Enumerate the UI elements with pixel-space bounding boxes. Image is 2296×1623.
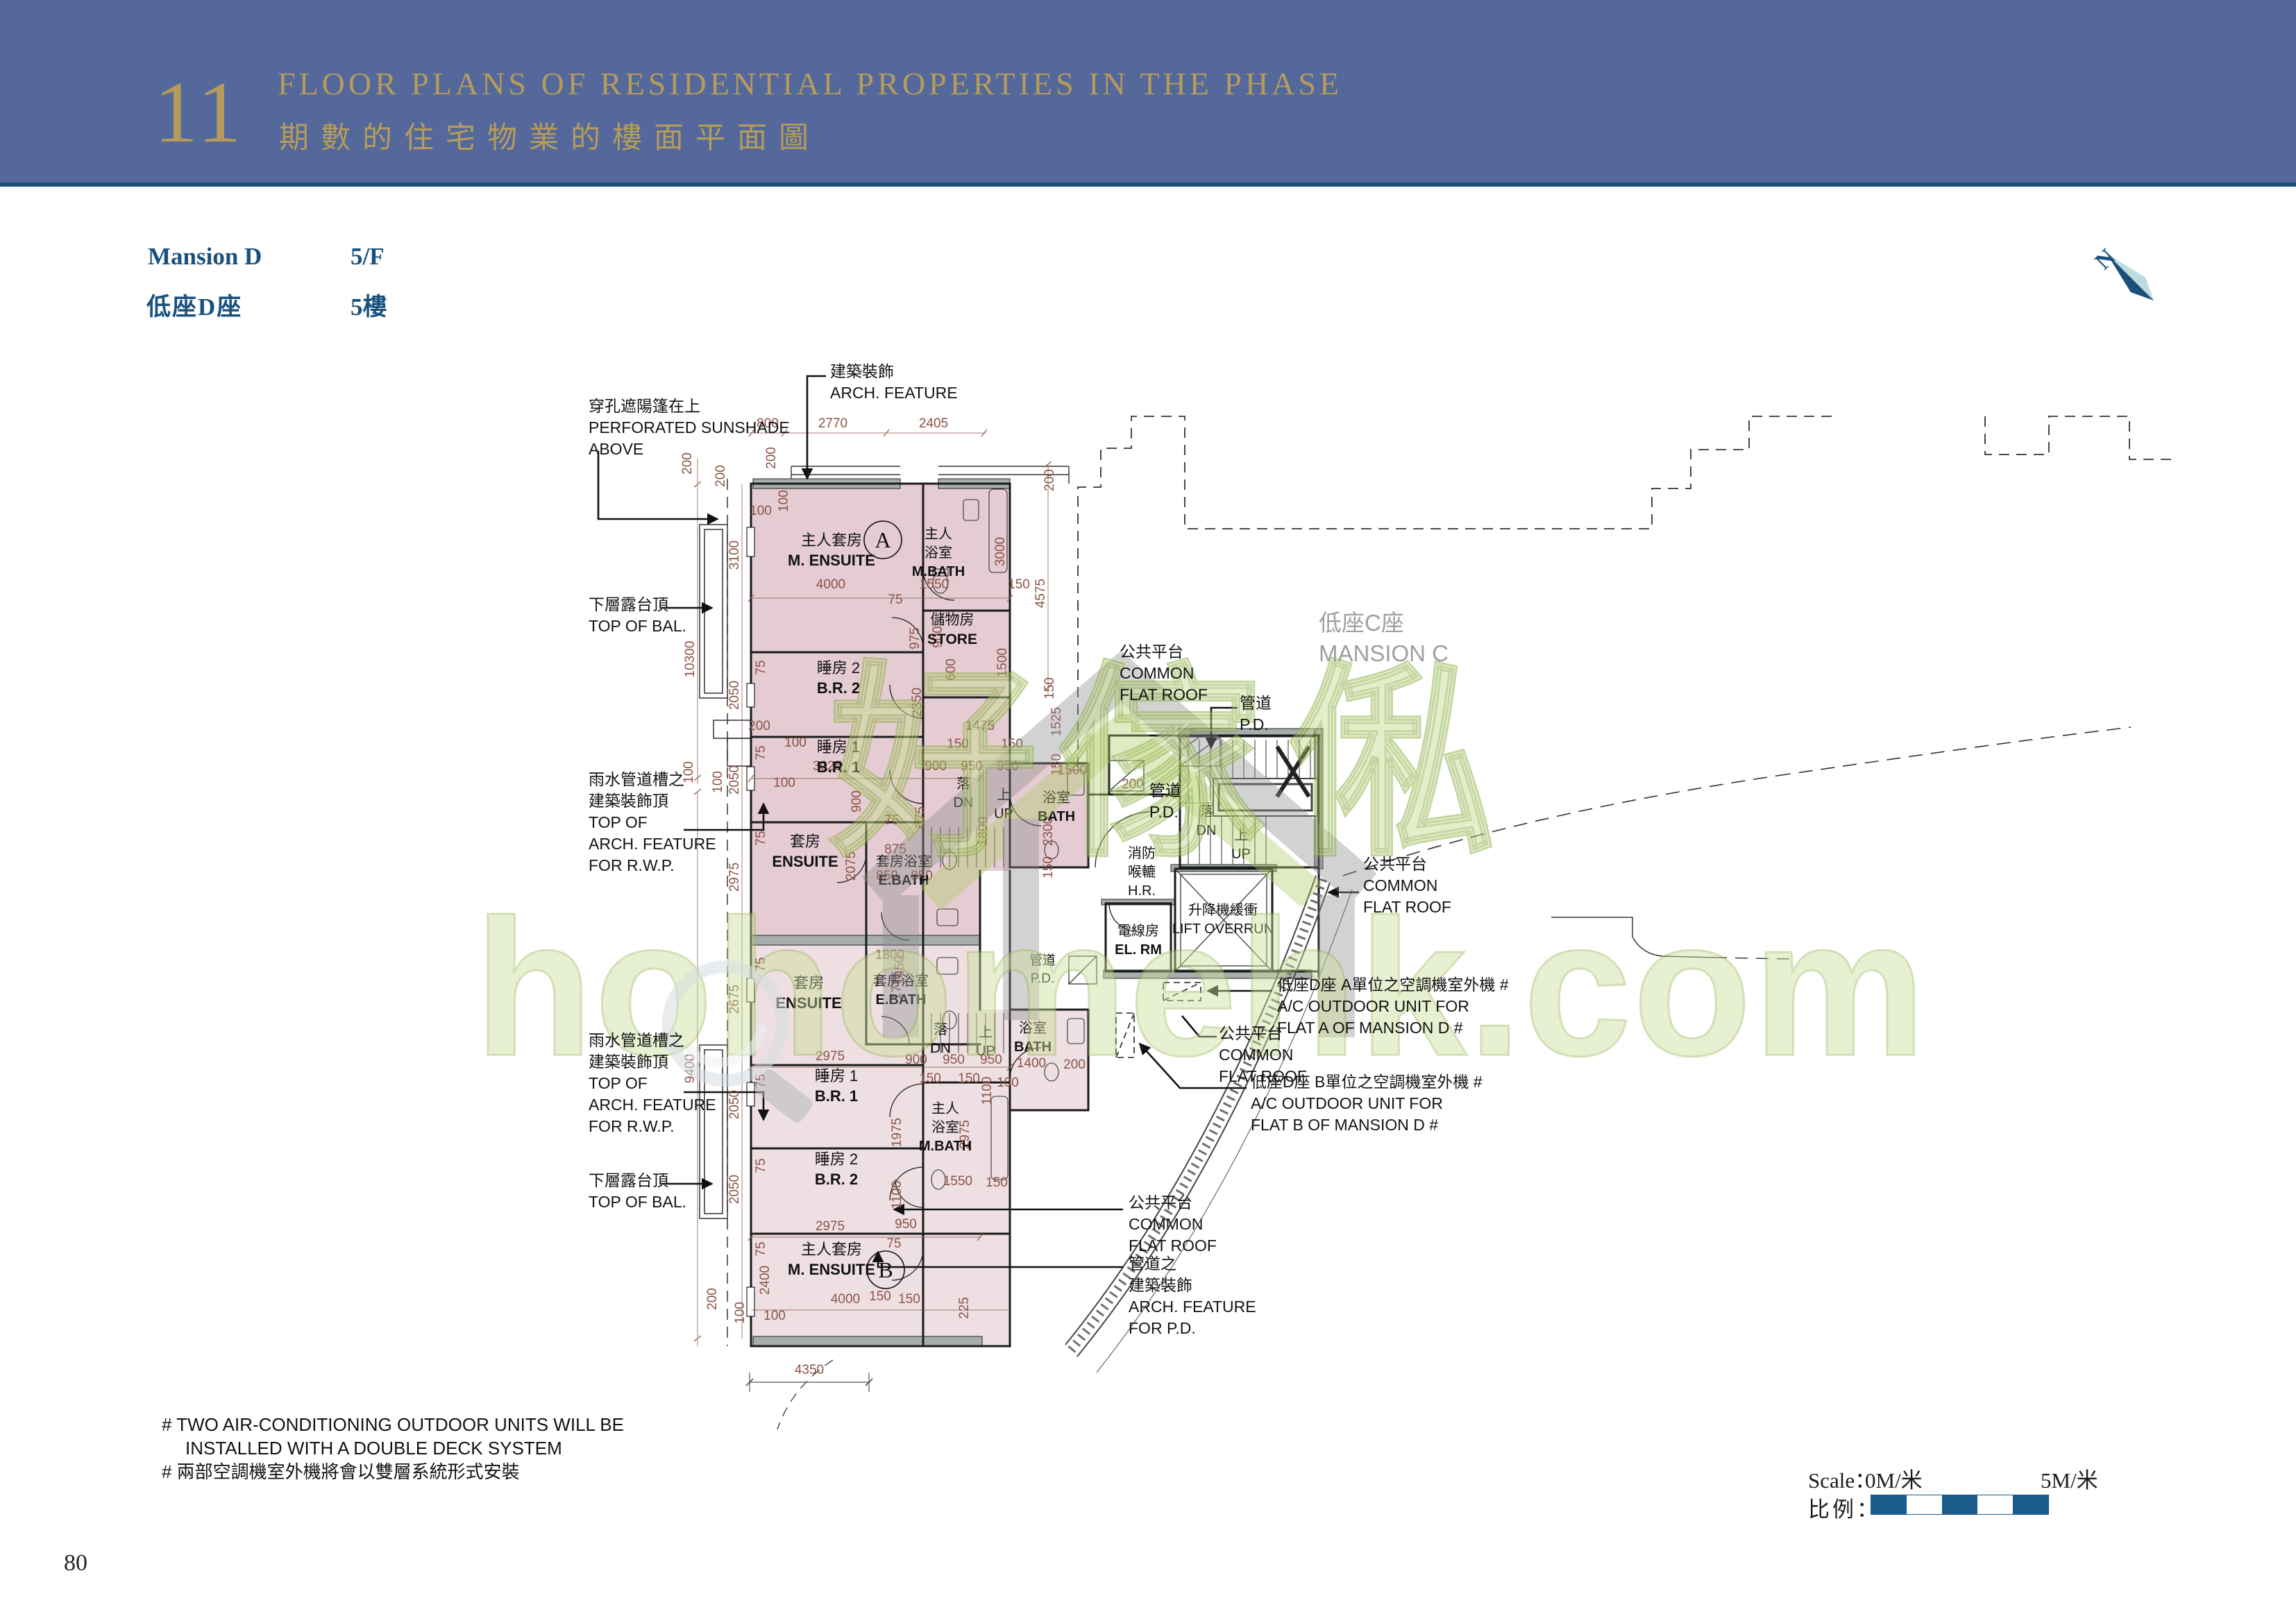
room-label: M. ENSUITE — [788, 552, 875, 569]
dim-label: 200 — [714, 465, 728, 487]
scale-bar-segments — [1871, 1495, 2049, 1515]
annotation-common-flat-roof-1: 公共平台COMMONFLAT ROOF — [1120, 641, 1208, 706]
dim-label: 2975 — [816, 1219, 845, 1234]
annotation-top-of-bal-1: 下層露台頂TOP OF BAL. — [589, 594, 686, 637]
dim-label: 3000 — [993, 537, 1008, 566]
dim-label: 2050 — [727, 765, 742, 794]
dim-label: 2050 — [727, 681, 742, 710]
dim-label: 10300 — [683, 641, 698, 678]
dim-label: 2050 — [727, 1175, 742, 1204]
dim-label: 75 — [888, 593, 902, 607]
dim-label: 150 — [986, 1175, 1008, 1190]
scale-segment — [1907, 1495, 1942, 1514]
room-label: ENSUITE — [772, 853, 838, 870]
dim-label: 150 — [1008, 577, 1030, 592]
dim-label: 2770 — [818, 416, 847, 431]
room-label: B.R. 2 — [815, 1171, 858, 1188]
dim-label: 1550 — [943, 1174, 972, 1189]
north-arrow-icon: N — [2090, 244, 2161, 308]
dim-label: 975 — [908, 627, 922, 649]
floor-plan-drawing: 8002770240520020020010010031002050205029… — [0, 0, 2296, 1623]
dim-label: 4000 — [816, 577, 845, 592]
dim-label: 200 — [1043, 469, 1057, 491]
dim-label: 75 — [754, 745, 768, 760]
dim-label: 3100 — [727, 541, 742, 570]
annotation-rwp-1: 雨水管道槽之建築裝飾頂TOP OFARCH. FEATUREFOR R.W.P. — [589, 769, 716, 876]
dim-label: 75 — [754, 831, 768, 845]
dim-label: 100 — [777, 490, 791, 512]
dim-label: 100 — [733, 1302, 748, 1324]
dim-label: 75 — [886, 1237, 901, 1251]
dim-label: 1975 — [890, 1118, 904, 1147]
dim-label: 200 — [705, 1288, 720, 1310]
room-label: M. ENSUITE — [788, 1261, 875, 1278]
footnotes: # TWO AIR-CONDITIONING OUTDOOR UNITS WIL… — [162, 1413, 624, 1484]
dim-label: 75 — [754, 660, 768, 674]
dim-label: 100 — [763, 1309, 786, 1323]
room-label: 主人套房 — [801, 1241, 862, 1258]
room-label: STORE — [927, 631, 977, 647]
scale-bar: Scale： 0M/米 5M/米 比例： — [1808, 1463, 2197, 1518]
north-label: N — [2090, 244, 2120, 275]
flat-mark-letter: B — [878, 1257, 893, 1282]
dim-label: 200 — [748, 719, 770, 733]
annotation-common-flat-roof-4: 公共平台COMMONFLAT ROOF — [1129, 1192, 1217, 1257]
room-label: 浴室 — [925, 545, 952, 561]
scale-five: 5M/米 — [2041, 1463, 2098, 1494]
room-label: 套房 — [790, 833, 820, 850]
page-number: 80 — [64, 1550, 87, 1577]
annotation-arch-feature: 建築裝飾ARCH. FEATURE — [830, 361, 958, 404]
annotation-ac-flat-a: 低座D座 A單位之空調機室外機 #A/C OUTDOOR UNIT FORFLA… — [1277, 974, 1509, 1039]
annotation-arch-feature-pd: 管道之建築裝飾ARCH. FEATUREFOR P.D. — [1129, 1253, 1256, 1339]
annotation-ac-flat-b: 低座D座 B單位之空調機室外機 #A/C OUTDOOR UNIT FORFLA… — [1251, 1071, 1483, 1136]
annotation-top-of-bal-2: 下層露台頂TOP OF BAL. — [589, 1170, 686, 1213]
dim-label: 225 — [957, 1297, 972, 1319]
footnote-line2: INSTALLED WITH A DOUBLE DECK SYSTEM — [162, 1436, 624, 1460]
dim-label: 1550 — [920, 577, 949, 592]
dim-label: 150 — [869, 1289, 891, 1304]
flat-mark-letter: A — [875, 527, 890, 552]
dim-label: 75 — [754, 1241, 768, 1256]
dim-label: 950 — [895, 1217, 917, 1232]
scale-zero: 0M/米 — [1865, 1463, 1923, 1494]
footnote-line1: # TWO AIR-CONDITIONING OUTDOOR UNITS WIL… — [162, 1413, 624, 1436]
dim-label: 100 — [750, 504, 772, 518]
dim-label: 4575 — [1033, 579, 1048, 608]
dim-label: 2405 — [919, 416, 948, 431]
room-label: M.BATH — [919, 1139, 972, 1154]
annotation-pd-2: 管道P.D. — [1149, 780, 1181, 823]
dim-label: 4350 — [795, 1363, 824, 1377]
scale-segment — [1977, 1495, 2013, 1514]
dim-label: 2400 — [758, 1266, 773, 1295]
scale-segment — [1871, 1495, 1907, 1514]
room-label: 睡房 2 — [815, 1150, 858, 1168]
dim-label: 100 — [773, 776, 795, 790]
annotation-pd-1: 管道P.D. — [1240, 692, 1272, 736]
dim-label: 1100 — [890, 1181, 904, 1209]
annotation-mansion-c: 低座C座MANSION C — [1319, 608, 1449, 669]
dim-label: 4000 — [831, 1292, 860, 1307]
annotation-common-flat-roof-2: 公共平台COMMONFLAT ROOF — [1363, 853, 1451, 918]
annotation-sunshade: 穿孔遮陽篷在上PERFORATED SUNSHADEABOVE — [589, 396, 790, 460]
room-label: 浴室 — [931, 1119, 959, 1135]
dim-label: 150 — [898, 1292, 920, 1307]
scale-segment — [2013, 1495, 2048, 1514]
room-label: 主人 — [931, 1101, 959, 1116]
room-label: 儲物房 — [931, 612, 974, 628]
dim-label: 100 — [784, 736, 807, 750]
room-label: 主人 — [925, 526, 952, 542]
scale-segment — [1942, 1495, 1977, 1514]
room-label: M.BATH — [912, 564, 965, 579]
annotation-rwp-2: 雨水管道槽之建築裝飾頂TOP OFARCH. FEATUREFOR R.W.P. — [589, 1030, 716, 1137]
footnote-line3: # 兩部空調機室外機將會以雙層系統形式安裝 — [162, 1460, 624, 1484]
dim-label: 75 — [754, 1158, 768, 1173]
brochure-page: 11 FLOOR PLANS OF RESIDENTIAL PROPERTIES… — [0, 0, 2296, 1623]
room-label: 主人套房 — [801, 532, 862, 549]
